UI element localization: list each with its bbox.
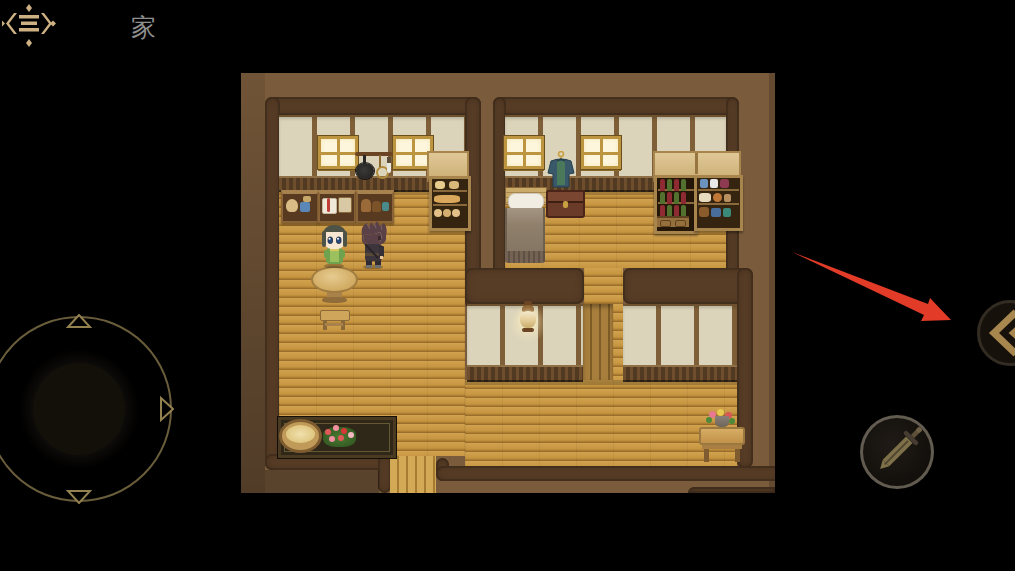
- round-table: [311, 266, 358, 305]
- cabinet-shelf: [694, 175, 743, 231]
- bed-blanket: [505, 208, 545, 251]
- exit-corridor: [390, 456, 436, 493]
- double-chevron-left-icon: [994, 312, 1015, 354]
- wall: [265, 97, 280, 470]
- game-screen: 家: [0, 0, 1015, 571]
- clay-jar: [361, 199, 371, 212]
- pan-handle: [363, 155, 366, 165]
- coat-on-wall: [545, 151, 577, 189]
- storage-chest: [546, 190, 585, 218]
- wall: [436, 466, 775, 481]
- stool: [320, 310, 348, 331]
- wall-lamp: [511, 301, 545, 347]
- virtual-joystick[interactable]: [0, 314, 174, 504]
- bed-fringe: [505, 251, 545, 263]
- attack-button[interactable]: [860, 415, 934, 489]
- mid-wall-panels-right: [623, 304, 737, 367]
- lower-hall-floor: [465, 380, 737, 466]
- joystick-knob: [33, 363, 125, 455]
- window: [581, 136, 621, 169]
- counter-crate: [318, 190, 356, 223]
- sack: [286, 199, 298, 212]
- rack-bar: [355, 152, 393, 156]
- hanging-cookware-rack: [355, 150, 393, 190]
- bread-shelf: [429, 176, 471, 231]
- bread-basket: [279, 419, 322, 455]
- wall: [493, 97, 739, 115]
- doorway-floor: [613, 304, 623, 380]
- flower-box: [321, 423, 358, 451]
- side-toggle-button[interactable]: [977, 300, 1015, 366]
- rack-cabinet-doors: [657, 216, 689, 227]
- exterior-shadow-right: [769, 73, 775, 493]
- flower-table: [699, 409, 745, 463]
- window: [318, 136, 358, 169]
- game-viewport[interactable]: [241, 73, 775, 493]
- floor-shadow: [465, 380, 737, 385]
- counter-crate: [281, 190, 319, 223]
- framed-picture: [338, 197, 352, 213]
- ladle-handle: [379, 155, 381, 167]
- flower-pot: [715, 416, 729, 427]
- ornate-menu-icon: [2, 4, 56, 47]
- wall: [265, 97, 481, 115]
- tan-box: [303, 196, 311, 202]
- chest-clasp: [563, 201, 568, 208]
- player-character: [358, 220, 389, 269]
- wine-rack: [654, 175, 698, 234]
- npc-woman: [320, 223, 349, 268]
- teal-box: [382, 202, 389, 211]
- door-planks: [583, 304, 613, 380]
- sword-icon: [874, 421, 928, 475]
- exterior-shadow-left: [241, 73, 265, 493]
- frying-pan-icon: [356, 163, 374, 179]
- window: [504, 136, 544, 169]
- clay-jar: [372, 201, 381, 212]
- exterior-shadow-bottom-left: [265, 470, 379, 493]
- knife-icon: [387, 157, 391, 173]
- doorway-floor: [584, 268, 623, 304]
- wall: [465, 268, 584, 304]
- wall: [623, 268, 753, 304]
- bed: [505, 187, 545, 265]
- red-ribbon: [327, 198, 330, 212]
- counter-crate: [356, 190, 394, 223]
- menu-button[interactable]: [2, 2, 56, 50]
- scene-title: 家: [131, 11, 157, 44]
- wall: [688, 487, 775, 493]
- blue-box: [300, 202, 310, 212]
